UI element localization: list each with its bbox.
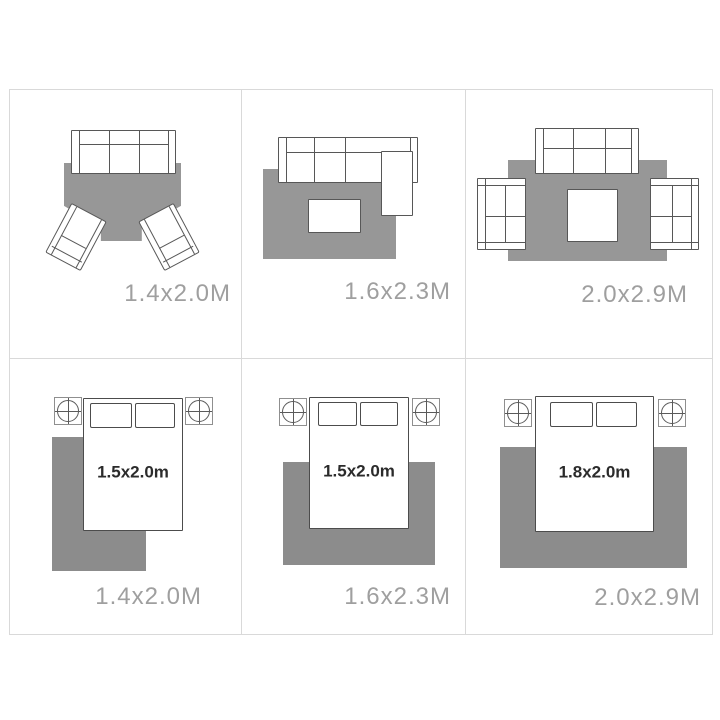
rug-size-label: 1.6x2.3M (344, 280, 451, 304)
cell-living-room-3: 2.0x2.9M (465, 90, 712, 358)
pillow-icon (550, 402, 593, 427)
pillow-icon (318, 402, 357, 426)
rug-size-label: 1.4x2.0M (124, 282, 231, 306)
nightstand-lamp-icon (185, 397, 213, 425)
nightstand-lamp-icon (412, 398, 440, 426)
sofa-three-seat-icon (71, 130, 176, 174)
bed-size-label: 1.8x2.0m (559, 464, 631, 481)
rug-size-guide-image: { "palette": { "background": "#ffffff", … (0, 0, 720, 720)
bed-icon: 1.8x2.0m (535, 396, 654, 532)
nightstand-lamp-icon (279, 398, 307, 426)
pillow-icon (360, 402, 398, 426)
bed-size-label: 1.5x2.0m (323, 462, 395, 479)
loveseat-icon (650, 178, 699, 250)
size-guide-grid: 1.4x2.0M 1.6x2.3M (9, 89, 713, 635)
nightstand-lamp-icon (658, 399, 686, 427)
pillow-icon (90, 403, 132, 428)
rug-size-label: 1.4x2.0M (95, 585, 202, 609)
pillow-icon (135, 403, 175, 428)
cell-bedroom-1: 1.5x2.0m 1.4x2.0M (10, 358, 241, 634)
bed-icon: 1.5x2.0m (309, 397, 409, 529)
rug-size-label: 1.6x2.3M (344, 585, 451, 609)
rug-size-label: 2.0x2.9M (581, 283, 688, 307)
sofa-three-seat-icon (535, 128, 639, 174)
bed-size-label: 1.5x2.0m (97, 464, 169, 481)
cell-living-room-2: 1.6x2.3M (241, 90, 465, 358)
cell-bedroom-2: 1.5x2.0m 1.6x2.3M (241, 358, 465, 634)
nightstand-lamp-icon (504, 399, 532, 427)
rug-size-label: 2.0x2.9M (594, 586, 701, 610)
bed-icon: 1.5x2.0m (83, 398, 183, 531)
loveseat-icon (477, 178, 526, 250)
chaise-section-icon (381, 151, 413, 216)
coffee-table-icon (308, 199, 361, 233)
coffee-table-icon (567, 189, 618, 242)
cell-living-room-1: 1.4x2.0M (10, 90, 241, 358)
nightstand-lamp-icon (54, 397, 82, 425)
pillow-icon (596, 402, 637, 427)
cell-bedroom-3: 1.8x2.0m 2.0x2.9M (465, 358, 712, 634)
